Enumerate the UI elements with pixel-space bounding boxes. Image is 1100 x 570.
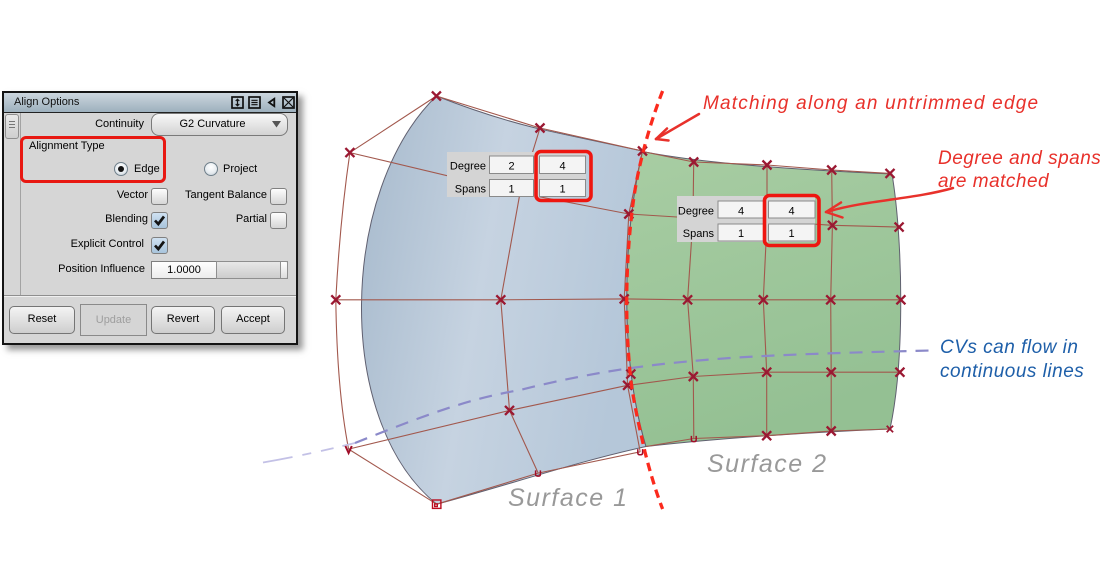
svg-text:Spans: Spans bbox=[683, 228, 715, 240]
svg-text:1: 1 bbox=[788, 228, 794, 240]
svg-text:4: 4 bbox=[559, 161, 565, 173]
svg-text:Surface 2: Surface 2 bbox=[707, 450, 828, 478]
svg-text:continuous lines: continuous lines bbox=[940, 361, 1084, 382]
svg-text:2: 2 bbox=[508, 161, 514, 173]
svg-text:4: 4 bbox=[738, 206, 744, 218]
svg-text:1: 1 bbox=[508, 184, 514, 196]
svg-text:1: 1 bbox=[559, 184, 565, 196]
svg-text:4: 4 bbox=[788, 206, 794, 218]
svg-text:CVs can flow in: CVs can flow in bbox=[940, 337, 1078, 358]
svg-text:Matching along an untrimmed ed: Matching along an untrimmed edge bbox=[703, 93, 1039, 114]
svg-text:Degree: Degree bbox=[450, 161, 486, 173]
svg-text:Surface 1: Surface 1 bbox=[508, 484, 629, 512]
svg-text:are matched: are matched bbox=[938, 171, 1050, 192]
svg-text:Spans: Spans bbox=[455, 184, 487, 196]
svg-text:Degree: Degree bbox=[678, 206, 714, 218]
svg-text:1: 1 bbox=[738, 228, 744, 240]
svg-text:Degree and spans: Degree and spans bbox=[938, 148, 1100, 169]
